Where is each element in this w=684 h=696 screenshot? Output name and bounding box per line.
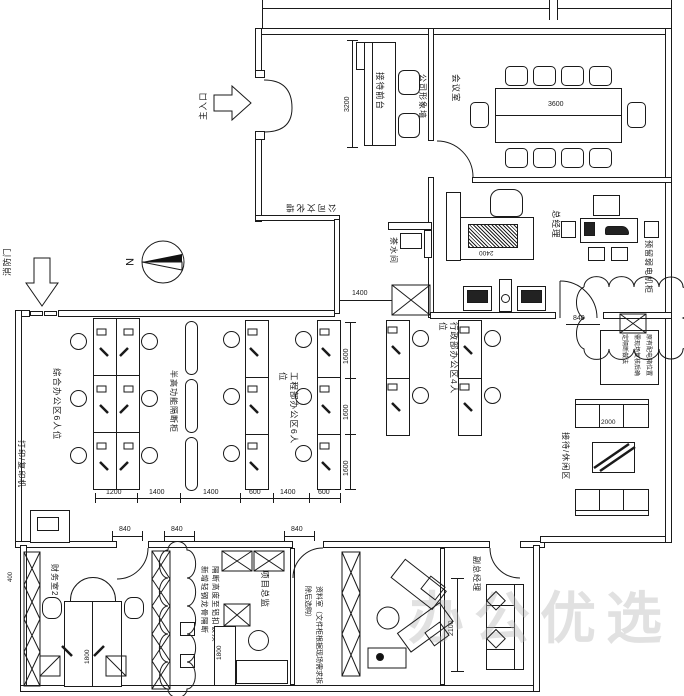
dim-tick xyxy=(164,531,165,541)
chair xyxy=(70,390,87,407)
dim-400: 400 xyxy=(8,572,14,582)
gm-door-arc xyxy=(560,281,597,318)
speaker-cone xyxy=(501,294,510,303)
desk-divider xyxy=(317,434,341,435)
desk-divider xyxy=(245,377,269,378)
dim-tick xyxy=(345,322,356,323)
dim-line xyxy=(557,8,672,9)
dim-line-1600 xyxy=(350,322,351,490)
dim-tick xyxy=(347,40,358,41)
cabinet-pill xyxy=(185,321,198,375)
desk-divider xyxy=(317,377,341,378)
door-jamb xyxy=(255,131,265,140)
chair xyxy=(223,388,240,405)
wall-right-upper xyxy=(665,28,672,320)
chair xyxy=(124,597,144,619)
wall-right-lower xyxy=(665,318,672,543)
wall-top xyxy=(255,28,672,35)
dim-tick xyxy=(549,0,550,20)
partition-strip xyxy=(152,551,170,689)
main-entrance-label: 主入口 xyxy=(198,80,209,120)
dim-600: 600 xyxy=(249,489,261,496)
dim-tick xyxy=(240,493,241,503)
gm-pc xyxy=(584,222,595,236)
dim-tick xyxy=(284,531,285,541)
dim-840: 840 xyxy=(171,526,183,533)
dim-tick xyxy=(347,147,358,148)
desk-column-eng xyxy=(245,320,269,490)
dim-tick xyxy=(273,493,274,503)
gm-label: 总经理 xyxy=(550,210,561,250)
dim-1400: 1400 xyxy=(352,290,368,297)
wall-conf-gm-divider xyxy=(472,177,672,183)
partition-note-1: 新增轻钢龙骨隔断 xyxy=(199,566,210,686)
dim-tick xyxy=(345,378,356,379)
compass-icon xyxy=(142,241,184,283)
fire-door-leaf xyxy=(30,311,43,316)
tea-counter-side xyxy=(424,230,432,258)
wall-conference-left-a xyxy=(428,28,434,141)
chair xyxy=(627,102,646,128)
zone-admin-label: 行政部办公区4人位 xyxy=(437,322,459,402)
desk-divider xyxy=(245,434,269,435)
sofa-line xyxy=(599,404,600,428)
chair xyxy=(505,148,528,168)
zone-general-label: 综合办公区6人位 xyxy=(51,368,62,444)
revision-cloud-partition xyxy=(159,542,195,696)
desk-column-eng xyxy=(317,320,341,490)
pd-label: 项目总监 xyxy=(259,570,270,614)
sofa xyxy=(575,489,649,516)
dim-1400: 1400 xyxy=(203,489,219,496)
dim-840: 840 xyxy=(119,526,131,533)
dim-3600: 3600 xyxy=(548,101,564,108)
printer-label: 打印/复印机 xyxy=(16,440,27,504)
reception-desk-return xyxy=(356,42,365,70)
wall-office-top-d xyxy=(603,312,672,319)
fire-door-leaf xyxy=(44,311,57,316)
dim-1800: 1800 xyxy=(216,646,223,660)
main-entrance-arrow xyxy=(214,86,251,120)
chair xyxy=(533,148,556,168)
monitor-screen xyxy=(521,290,542,303)
weak-current-label: 预留弱电机柜 xyxy=(643,240,654,316)
chair xyxy=(248,630,269,651)
desk-divider xyxy=(93,375,140,376)
sofa-line xyxy=(575,510,649,511)
wall-office-left xyxy=(15,310,22,548)
coffee-table xyxy=(592,442,635,473)
stool xyxy=(180,622,195,636)
chair xyxy=(561,148,584,168)
dim-line xyxy=(164,536,194,537)
chair xyxy=(589,66,612,86)
conference-door-arc xyxy=(437,141,473,177)
dim-tick xyxy=(309,493,310,503)
entrance-double-door xyxy=(264,80,292,132)
wall-bottomwing-top-c xyxy=(323,541,490,548)
chair xyxy=(141,447,158,464)
tea-counter-top xyxy=(388,222,432,230)
dim-line xyxy=(284,536,314,537)
chair xyxy=(70,333,87,350)
reception-desk-edge xyxy=(372,42,373,146)
finance-desk-return xyxy=(70,577,116,602)
dim-1800: 1800 xyxy=(84,650,91,664)
dim-tick xyxy=(180,493,181,503)
chair xyxy=(533,66,556,86)
column-box xyxy=(392,285,430,315)
cabinet-pill xyxy=(185,437,198,491)
dim-1400: 1400 xyxy=(280,489,296,496)
desk-divider xyxy=(386,378,410,379)
dim-1200: 1200 xyxy=(106,489,122,496)
finance-desks xyxy=(64,601,122,687)
monitor-screen xyxy=(467,290,488,303)
dim-tick xyxy=(112,531,113,541)
dim-840-entry: 840 xyxy=(573,315,585,322)
finance-door-arc xyxy=(117,548,148,579)
stool xyxy=(180,654,195,668)
sofa-line xyxy=(599,489,600,510)
cabinet-pill xyxy=(185,379,198,433)
wall-bottomwing-left xyxy=(20,545,27,692)
pd-door-arc xyxy=(293,548,323,578)
chair xyxy=(412,387,429,404)
wall-bottomwing-top-b xyxy=(148,541,293,548)
dim-line xyxy=(262,8,550,9)
wall-upper-left-b xyxy=(255,139,262,222)
desk-divider xyxy=(92,601,93,687)
fire-exit-arrow xyxy=(26,258,58,306)
dim-tick xyxy=(95,493,96,503)
wall-upper-left-a xyxy=(255,28,262,72)
printer-tray xyxy=(37,517,59,531)
gm-monitor xyxy=(593,195,620,216)
dim-tick xyxy=(194,531,195,541)
dim-line xyxy=(566,324,600,325)
chair xyxy=(589,148,612,168)
site-note-text: 原有配电箱位置需现场复核后确定隔断做法 xyxy=(604,334,654,378)
wall-lounge-bottom xyxy=(540,536,672,543)
dim-1600: 1600 xyxy=(343,348,350,364)
dim-line-1400 xyxy=(340,300,392,301)
pd-desk-return xyxy=(236,660,288,684)
dim-tick xyxy=(137,493,138,503)
dim-line-row xyxy=(95,498,340,499)
partition-cabinet-label: 半高功能隔断柜 xyxy=(168,370,179,440)
sofa-line xyxy=(575,404,649,405)
wall-office-top-b xyxy=(58,310,335,317)
dim-2400: 2400 xyxy=(479,249,493,256)
dim-1600: 1600 xyxy=(343,404,350,420)
dim-2000: 2000 xyxy=(601,419,615,426)
gm-exec-chair xyxy=(490,189,523,217)
dim-tick xyxy=(451,671,464,672)
zone-engineering-label: 工程部办公区6人位 xyxy=(277,372,299,452)
chair xyxy=(70,447,87,464)
chair xyxy=(505,66,528,86)
reception-label: 接待前台 xyxy=(374,72,385,138)
wall-office-top-c xyxy=(430,312,556,319)
meeting-room-label: 会议室 xyxy=(450,74,461,114)
dim-1400: 1400 xyxy=(149,489,165,496)
wall-pd-archive xyxy=(290,548,295,685)
dim-3200: 3200 xyxy=(344,96,351,112)
archive-label: 资料室（文件柜根据现场需求拆除后选购） xyxy=(300,586,324,684)
wall-culture xyxy=(255,215,340,221)
dim-tick xyxy=(345,489,356,490)
stool xyxy=(644,221,659,238)
lounge-label: 接待/休闲区 xyxy=(560,432,571,496)
fire-door-label: 消防门 xyxy=(2,230,13,276)
chair xyxy=(295,331,312,348)
desk-divider xyxy=(116,318,117,490)
image-wall-label: 公司形象墙 xyxy=(417,74,428,150)
chair xyxy=(484,330,501,347)
chair xyxy=(223,445,240,462)
sofa-line xyxy=(623,489,624,510)
stool xyxy=(611,247,628,261)
office-floor-plan: 3200 接待前台 公司形象墙 主入口 3600 会议室 2400 总经理 预留… xyxy=(0,0,684,696)
gm-phone xyxy=(605,226,629,235)
dim-tick xyxy=(671,0,672,28)
compass-north-label: N xyxy=(123,258,135,266)
desk-divider xyxy=(93,432,140,433)
dim-tick xyxy=(314,531,315,541)
chair xyxy=(223,331,240,348)
archive-cabinet-strip xyxy=(342,552,360,676)
dim-1600: 1600 xyxy=(343,460,350,476)
chair xyxy=(470,102,489,128)
dim-line-3200 xyxy=(352,40,353,148)
dim-tick xyxy=(262,0,263,28)
dim-600: 600 xyxy=(318,489,330,496)
chair xyxy=(42,597,62,619)
conference-table-midline xyxy=(495,115,622,116)
culture-wall-label: 公司文化墙 xyxy=(284,202,337,214)
chair xyxy=(412,330,429,347)
stool xyxy=(588,247,605,261)
dim-tick xyxy=(557,0,558,20)
tea-room-label: 茶水间 xyxy=(388,237,399,271)
tea-sink xyxy=(400,233,422,249)
chair xyxy=(141,390,158,407)
gm-desk-hatch xyxy=(468,224,518,248)
dim-840: 840 xyxy=(291,526,303,533)
watermark: 办公优选 xyxy=(408,574,672,655)
dim-tick xyxy=(345,434,356,435)
sofa-line xyxy=(623,404,624,428)
dim-tick xyxy=(340,493,341,503)
chair xyxy=(484,387,501,404)
chair xyxy=(561,66,584,86)
desk-divider xyxy=(458,378,482,379)
door-jamb xyxy=(255,70,265,78)
dim-line xyxy=(112,536,142,537)
pd-file-cabinets xyxy=(222,551,284,626)
gm-sideboard xyxy=(446,192,461,261)
chair xyxy=(141,333,158,350)
stool xyxy=(561,221,576,238)
dim-tick xyxy=(142,531,143,541)
